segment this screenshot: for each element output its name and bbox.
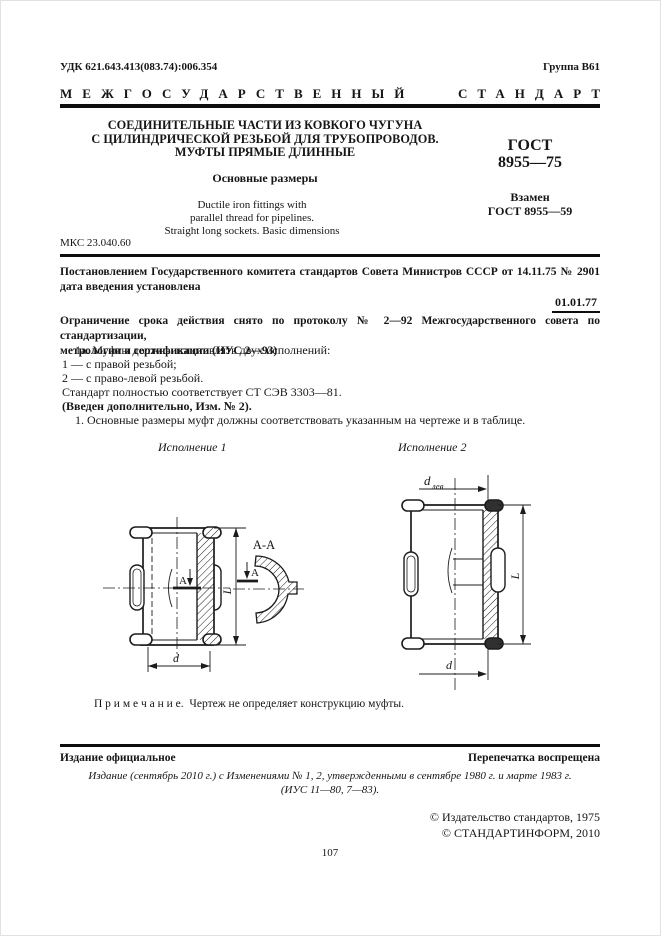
gost-document-page: УДК 621.643.413(083.74):006.354 Группа В… — [0, 0, 661, 936]
edition-line: (ИУС 11—80, 7—83). — [60, 784, 600, 798]
copyright-line: © Издательство стандартов, 1975 — [60, 810, 600, 826]
official-edition-label: Издание официальное — [60, 752, 176, 764]
english-title: Ductile iron fittings with parallel thre… — [47, 199, 457, 238]
document-title-line: С ЦИЛИНДРИЧЕСКОЙ РЕЗЬБОЙ ДЛЯ ТРУБОПРОВОД… — [60, 133, 470, 147]
coupling-section-view — [402, 475, 531, 690]
udk-code: УДК 621.643.413(083.74):006.354 — [60, 61, 217, 73]
title-block: СОЕДИНИТЕЛЬНЫЕ ЧАСТИ ИЗ КОВКОГО ЧУГУНА С… — [60, 119, 470, 238]
edition-info: Издание (сентябрь 2010 г.) с Изменениями… — [60, 770, 600, 797]
rib-section-shape — [255, 556, 297, 623]
standard-number-block: ГОСТ 8955—75 Взамен ГОСТ 8955—59 — [468, 137, 592, 218]
body-paragraph: 1а. Муфты должны изготовлять двух исполн… — [62, 344, 600, 358]
variant2-drawing: d лев L d — [375, 458, 555, 708]
note-text: Чертеж не определяет конструкцию муфты. — [189, 698, 404, 710]
body-paragraph: Стандарт полностью соответствует СТ СЭВ … — [62, 386, 600, 400]
section-marker-label: А — [251, 567, 259, 579]
banner-word-1: МЕЖГОСУДАРСТВЕННЫЙ — [60, 86, 414, 102]
dimension-d-left-label: d — [424, 473, 431, 488]
replaces-label: Взамен — [468, 190, 592, 204]
section-rule — [60, 254, 600, 257]
decree-line: дата введения установлена — [60, 280, 600, 295]
gost-number: 8955—75 — [468, 154, 592, 171]
body-paragraph: 2 — с право-левой резьбой. — [62, 372, 600, 386]
header-row: УДК 621.643.413(083.74):006.354 Группа В… — [60, 61, 600, 73]
edition-line: Издание (сентябрь 2010 г.) с Изменениями… — [60, 770, 600, 784]
body-paragraph: 1 — с правой резьбой; — [62, 358, 600, 372]
dimension-d-label: d — [446, 658, 453, 672]
decree-paragraph: Постановлением Государственного комитета… — [60, 265, 600, 295]
reprint-forbidden-label: Перепечатка воспрещена — [468, 752, 600, 764]
document-title-line: МУФТЫ ПРЯМЫЕ ДЛИННЫЕ — [60, 146, 470, 160]
note-paragraph: П р и м е ч а н и е. Чертеж не определяе… — [94, 698, 600, 710]
body-paragraph: (Введен дополнительно, Изм. № 2). — [62, 400, 600, 414]
variant1-drawing: А А А-А d L — [100, 485, 315, 685]
group-code: Группа В61 — [543, 61, 600, 73]
decree-line: Постановлением Государственного комитета… — [60, 265, 600, 280]
document-title-line: СОЕДИНИТЕЛЬНЫЕ ЧАСТИ ИЗ КОВКОГО ЧУГУНА — [60, 119, 470, 133]
english-title-line: Ductile iron fittings with — [47, 199, 457, 212]
english-title-line: parallel thread for pipelines. — [47, 212, 457, 225]
footer-row: Издание официальное Перепечатка воспреще… — [60, 752, 600, 764]
section-marker-label: А — [179, 575, 187, 587]
english-title-line: Straight long sockets. Basic dimensions — [47, 225, 457, 238]
body-paragraph: 1. Основные размеры муфт должны соответс… — [62, 414, 600, 428]
variant2-caption: Исполнение 2 — [398, 440, 466, 455]
variant1-caption: Исполнение 1 — [158, 440, 226, 455]
dimension-d-left-subscript: лев — [431, 481, 444, 491]
note-label: П р и м е ч а н и е. — [94, 698, 184, 710]
document-subtitle: Основные размеры — [60, 171, 470, 186]
restriction-line: Ограничение срока действия снято по прот… — [60, 314, 600, 344]
gost-label: ГОСТ — [468, 137, 592, 154]
footer-rule — [60, 744, 600, 747]
copyright-block: © Издательство стандартов, 1975 © СТАНДА… — [60, 810, 600, 841]
section-view-title: А-А — [253, 538, 275, 552]
mks-code: МКС 23.040.60 — [60, 237, 131, 249]
replaces-block: Взамен ГОСТ 8955—59 — [468, 190, 592, 218]
copyright-line: © СТАНДАРТИНФОРМ, 2010 — [60, 826, 600, 842]
effective-date: 01.01.77 — [552, 295, 600, 313]
banner-word-2: СТАНДАРТ — [458, 86, 610, 102]
dimension-L-label: L — [220, 587, 234, 595]
replaces-number: ГОСТ 8955—59 — [468, 204, 592, 218]
page-number: 107 — [60, 847, 600, 859]
body-text: 1а. Муфты должны изготовлять двух исполн… — [62, 344, 600, 427]
standard-type-banner: МЕЖГОСУДАРСТВЕННЫЙ СТАНДАРТ — [60, 86, 600, 102]
dimension-L-label: L — [508, 572, 522, 580]
dimension-d-label: d — [173, 651, 180, 665]
header-rule — [60, 104, 600, 108]
